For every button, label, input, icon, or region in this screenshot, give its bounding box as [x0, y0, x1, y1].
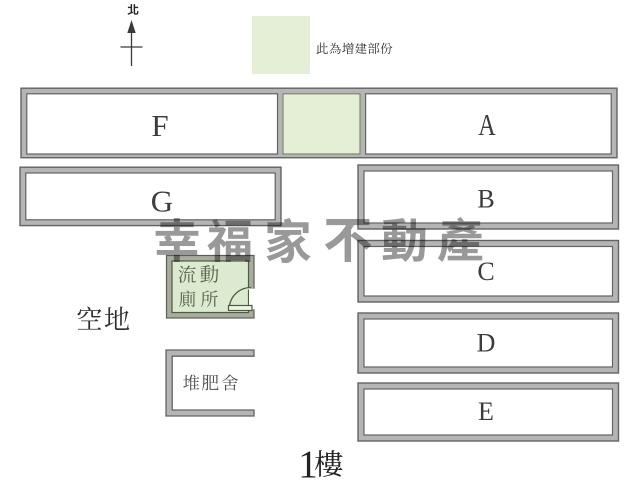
svg-text:F: F [151, 108, 168, 143]
svg-text:G: G [151, 184, 173, 219]
svg-text:E: E [478, 397, 494, 426]
svg-text:B: B [477, 185, 494, 214]
svg-text:D: D [477, 329, 496, 358]
svg-text:1: 1 [298, 443, 318, 480]
svg-text:C: C [477, 257, 494, 286]
svg-text:A: A [478, 108, 495, 143]
